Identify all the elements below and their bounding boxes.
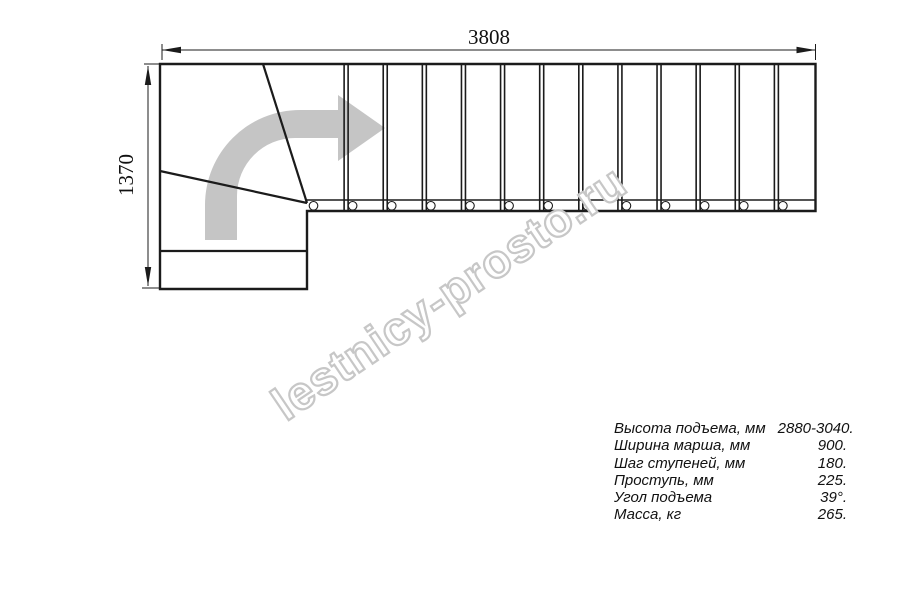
dimension-left-label: 1370 — [114, 154, 138, 196]
stair-plan-drawing: 3808 1370 lestnicy-prosto.ru Высота подъ… — [0, 0, 900, 600]
spec-row-3: Проступь, мм225. — [614, 472, 847, 489]
stringer-bolt-icon — [739, 202, 748, 211]
stringer-bolt-icon — [309, 202, 318, 211]
spec-label: Угол подъема — [614, 489, 712, 506]
spec-label: Шаг ступеней, мм — [614, 455, 745, 472]
spec-label: Ширина марша, мм — [614, 437, 750, 454]
stringer-bolt-icon — [466, 202, 475, 211]
stringer-bolt-icon — [387, 202, 396, 211]
dim-arrow-left-icon — [162, 47, 181, 53]
stringer-bolt-icon — [427, 202, 436, 211]
stringer-bolt-icon — [700, 202, 709, 211]
spec-label: Масса, кг — [614, 506, 681, 523]
dim-arrow-down-icon — [145, 267, 151, 286]
spec-label: Высота подъема, мм — [614, 420, 766, 437]
spec-value: 900. — [806, 437, 847, 454]
spec-value: 39°. — [808, 489, 847, 506]
spec-value: 180. — [806, 455, 847, 472]
dim-arrow-up-icon — [145, 66, 151, 85]
spec-row-5: Масса, кг265. — [614, 506, 847, 523]
watermark-text: lestnicy-prosto.ru — [262, 154, 636, 430]
stringer-bolt-icon — [348, 202, 357, 211]
spec-value: 265. — [806, 506, 847, 523]
stringer-bolt-icon — [505, 202, 514, 211]
spec-label: Проступь, мм — [614, 472, 714, 489]
stringer-bolt-icon — [661, 202, 670, 211]
spec-row-2: Шаг ступеней, мм180. — [614, 455, 847, 472]
spec-row-4: Угол подъема39°. — [614, 489, 847, 506]
spec-value: 2880-3040. — [766, 420, 854, 437]
spec-row-0: Высота подъема, мм2880-3040. — [614, 420, 847, 437]
stringer-bolt-icon — [779, 202, 788, 211]
spec-table: Высота подъема, мм2880-3040.Ширина марша… — [614, 420, 847, 524]
dim-arrow-right-icon — [797, 47, 816, 53]
spec-value: 225. — [806, 472, 847, 489]
dimension-left — [142, 64, 160, 288]
spec-row-1: Ширина марша, мм900. — [614, 437, 847, 454]
dimension-top-label: 3808 — [468, 25, 510, 49]
